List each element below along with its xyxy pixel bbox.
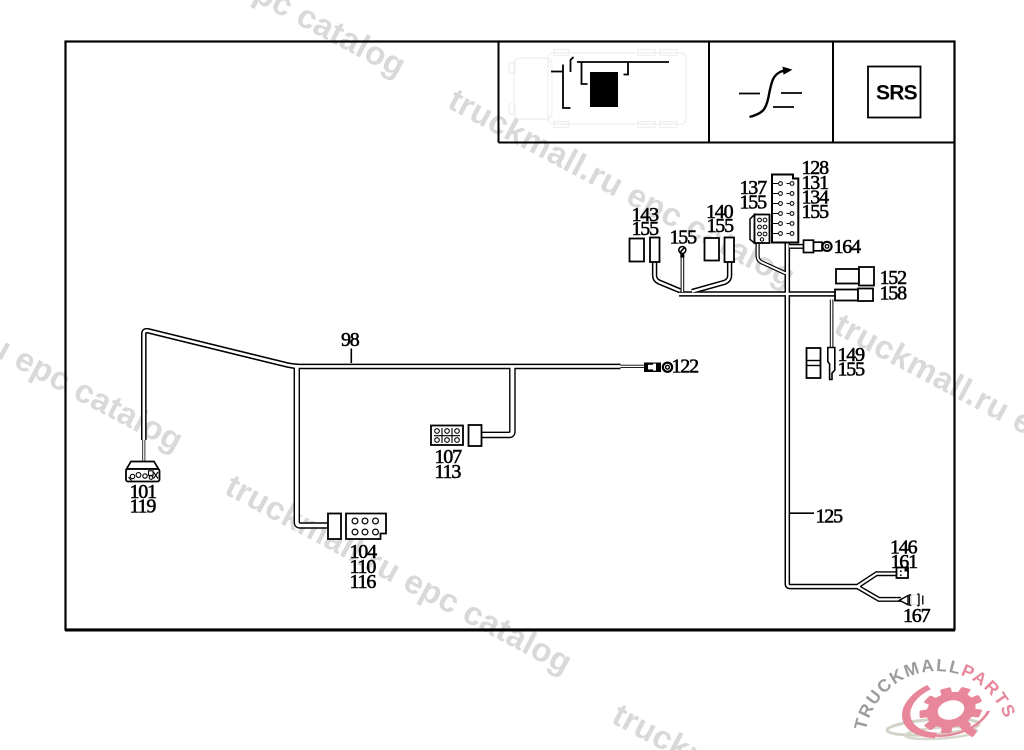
svg-text:truckmall.ru epc catalog: truckmall.ru epc catalog — [220, 467, 579, 681]
svg-text:SRS: SRS — [876, 82, 918, 105]
svg-text:98: 98 — [341, 329, 360, 351]
svg-text:167: 167 — [903, 605, 931, 627]
svg-text:155: 155 — [707, 215, 735, 237]
svg-text:155: 155 — [802, 201, 830, 223]
svg-text:155: 155 — [740, 192, 768, 214]
svg-text:161: 161 — [891, 551, 918, 573]
svg-text:122: 122 — [672, 356, 699, 378]
svg-text:155: 155 — [838, 359, 866, 381]
svg-text:158: 158 — [880, 283, 908, 305]
svg-text:119: 119 — [130, 496, 157, 518]
svg-text:155: 155 — [670, 227, 698, 249]
svg-text:125: 125 — [816, 506, 844, 528]
svg-text:116: 116 — [350, 571, 377, 593]
svg-text:155: 155 — [632, 218, 660, 240]
svg-text:164: 164 — [834, 236, 862, 258]
svg-text:truckmall: truckmall — [607, 696, 756, 750]
svg-text:113: 113 — [435, 461, 462, 483]
